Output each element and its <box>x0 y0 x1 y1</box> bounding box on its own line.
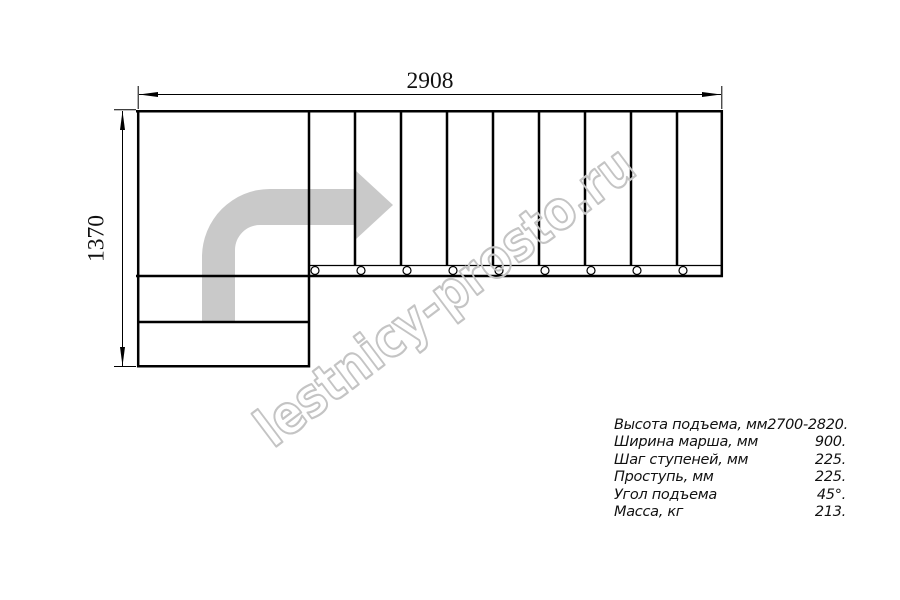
spec-table: Высота подъема, мм 2700-2820. Ширина мар… <box>614 417 846 521</box>
spec-row: Проступь, мм 225. <box>614 469 846 486</box>
spec-label: Высота подъема, мм <box>614 417 767 434</box>
spec-value: 45°. <box>817 487 846 504</box>
spec-value: 2700-2820. <box>767 417 848 434</box>
spec-row: Шаг ступеней, мм 225. <box>614 452 846 469</box>
spec-label: Проступь, мм <box>614 469 714 486</box>
dim-arrow-up-icon <box>120 111 125 130</box>
top-dimension: 2908 <box>138 68 722 109</box>
direction-arrow <box>202 170 393 322</box>
spec-label: Угол подъема <box>614 487 717 504</box>
left-dimension: 1370 <box>84 110 137 367</box>
spec-label: Масса, кг <box>614 504 683 521</box>
spec-label: Шаг ступеней, мм <box>614 452 748 469</box>
dim-arrow-right-icon <box>702 92 721 97</box>
spec-value: 225. <box>815 469 846 486</box>
spec-value: 900. <box>815 434 846 451</box>
dim-arrow-left-icon <box>139 92 158 97</box>
spec-label: Ширина марша, мм <box>614 434 758 451</box>
dim-arrow-down-icon <box>120 347 125 366</box>
spec-row: Угол подъема 45°. <box>614 487 846 504</box>
spec-row: Высота подъема, мм 2700-2820. <box>614 417 846 434</box>
spec-row: Масса, кг 213. <box>614 504 846 521</box>
spec-value: 213. <box>815 504 846 521</box>
spec-value: 225. <box>815 452 846 469</box>
spec-row: Ширина марша, мм 900. <box>614 434 846 451</box>
stair-drawing-page: 2908 1370 lestnicy-prosto.ru Высота подъ… <box>0 0 900 600</box>
watermark-text: lestnicy-prosto.ru <box>243 133 647 459</box>
left-dimension-label: 1370 <box>84 215 110 262</box>
top-dimension-label: 2908 <box>407 68 454 94</box>
